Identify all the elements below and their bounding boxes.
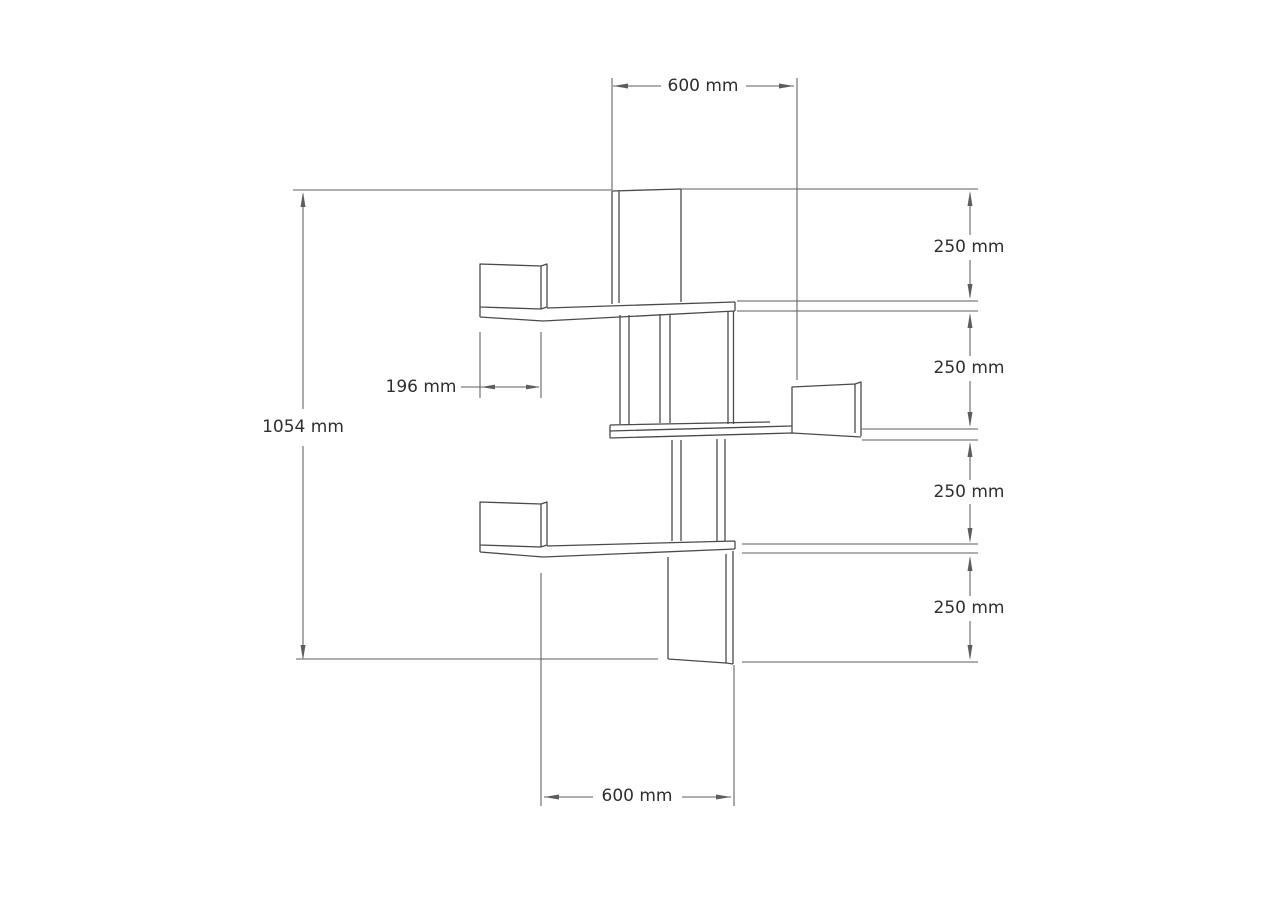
dimension-shelf-spacings: 250 mm 250 mm 250 mm 250 mm [681,189,1004,662]
top-back-panel [612,189,681,304]
corner-shelf-dimension-drawing: 600 mm 1054 mm 196 mm [0,0,1280,905]
extension-lines [612,78,797,380]
arrow-up-icon [301,192,306,207]
arrow-up-icon [968,442,973,457]
dim-spacing-4-label: 250 mm [934,598,1005,618]
shelf-1-side-panel [480,264,547,309]
dimension-total-height: 1054 mm [262,190,658,660]
dim-top-width-label: 600 mm [668,76,739,96]
arrow-right-icon [526,385,540,390]
upper-divider-panels [620,311,734,424]
dim-spacing-2-label: 250 mm [934,358,1005,378]
extension-lines [541,573,734,806]
drawing-canvas: 600 mm 1054 mm 196 mm [0,0,1280,905]
arrow-down-icon [968,412,973,427]
dimension-top-width: 600 mm [612,76,797,380]
arrow-left-icon [544,795,559,800]
arrow-left-icon [481,385,495,390]
extension-lines [293,190,658,659]
arrow-down-icon [301,645,306,660]
arrow-right-icon [779,84,794,89]
arrow-left-icon [613,84,628,89]
shelf-2-side-panel [792,382,861,436]
shelf-1-board [480,302,735,321]
dimension-bottom-width: 600 mm [541,573,734,806]
dimensions: 600 mm 1054 mm 196 mm [262,76,1004,806]
arrow-up-icon [968,556,973,571]
arrow-right-icon [716,795,731,800]
shelf-2-board [610,422,861,438]
arrow-down-icon [968,528,973,543]
shelf-3-side-panel [480,502,547,547]
arrow-up-icon [968,191,973,206]
lower-divider-panels [672,439,725,541]
arrow-down-icon [968,284,973,299]
arrow-up-icon [968,313,973,328]
arrow-down-icon [968,645,973,660]
dim-spacing-1-label: 250 mm [934,237,1005,257]
dimension-shelf-depth: 196 mm [386,332,541,398]
shelf-unit [480,189,861,664]
shelf-3-board [480,541,735,557]
dim-bottom-width-label: 600 mm [602,786,673,806]
dim-total-height-label: 1054 mm [262,417,344,437]
bottom-back-panel [668,551,733,664]
dim-shelf-depth-label: 196 mm [386,377,457,397]
dim-spacing-3-label: 250 mm [934,482,1005,502]
